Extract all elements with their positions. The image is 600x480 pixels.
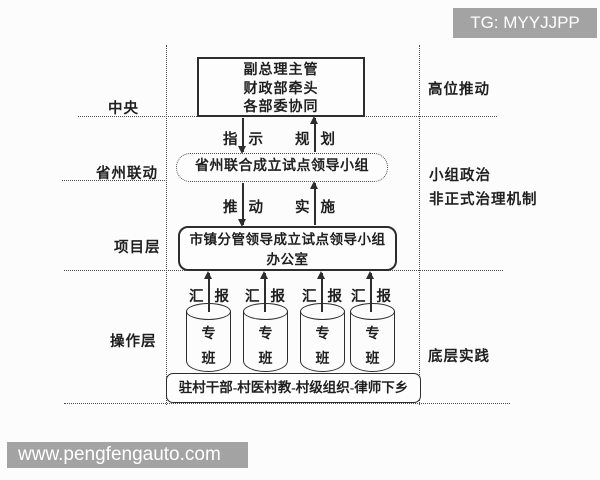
pilot-leading-group-box: 省州联合成立试点领导小组 [176, 153, 388, 182]
arrow-label-char: 报 [328, 285, 343, 306]
task-force-cylinder: 专 班 [243, 303, 288, 372]
cylinder-label: 专 班 [350, 322, 395, 372]
arrow-label-implement: 实 施 [295, 196, 335, 217]
arrow-label-report: 汇 报 [189, 285, 229, 306]
arrow-head [204, 271, 212, 279]
arrow-label-char: 实 [295, 196, 310, 217]
arrow-head [310, 181, 318, 189]
cylinder-label: 专 班 [243, 322, 288, 372]
diagram-canvas: 中央 省州联动 项目层 操作层 高位推动 小组政治 非正式治理机制 底层实践 副… [0, 0, 600, 480]
annotation-high-level-push: 高位推动 [428, 78, 490, 99]
arrow-label-char: 示 [249, 128, 264, 149]
central-government-box: 副总理主管 财政部牵头 各部委协同 [197, 57, 365, 117]
boundary-left-line [166, 45, 167, 405]
separator-bottom-line [64, 403, 510, 404]
central-box-line: 财政部牵头 [199, 81, 363, 100]
boundary-right-line [419, 45, 420, 405]
arrow-label-char: 汇 [245, 285, 260, 306]
cylinder-label-char: 班 [300, 347, 345, 372]
arrow-label-char: 划 [321, 128, 336, 149]
annotation-informal-governance: 非正式治理机制 [429, 188, 538, 209]
layer-label-project: 项目层 [114, 236, 161, 257]
arrow-label-push: 推 动 [223, 196, 263, 217]
cylinder-label: 专 班 [300, 322, 345, 372]
arrow-head [260, 271, 268, 279]
arrow-label-char: 指 [223, 128, 238, 149]
arrow-label-char: 规 [295, 128, 310, 149]
arrow-label-plan: 规 划 [295, 128, 335, 149]
arrow-label-instruct: 指 示 [223, 128, 263, 149]
layer-label-province: 省州联动 [96, 162, 158, 183]
cylinder-label-char: 专 [243, 322, 288, 347]
leading-group-office-box: 市镇分管领导成立试点领导小组 办公室 [178, 226, 397, 271]
arrow-label-char: 汇 [351, 285, 366, 306]
arrow-label-char: 汇 [189, 285, 204, 306]
annotation-group-politics: 小组政治 [429, 164, 491, 185]
central-box-line: 副总理主管 [199, 62, 363, 81]
layer-label-operation: 操作层 [110, 330, 157, 351]
arrow-head [317, 271, 325, 279]
task-force-cylinder: 专 班 [186, 303, 231, 372]
cylinder-label-char: 专 [300, 322, 345, 347]
arrow-label-char: 报 [215, 285, 230, 306]
cylinder-label-char: 专 [186, 322, 231, 347]
cylinder-label-char: 班 [243, 347, 288, 372]
arrow-label-char: 推 [223, 196, 238, 217]
arrow-label-report: 汇 报 [245, 285, 285, 306]
layer-label-central: 中央 [108, 97, 139, 118]
office-box-line: 办公室 [180, 250, 395, 270]
watermark-website: www.pengfengauto.com [7, 442, 248, 468]
arrow-label-report: 汇 报 [351, 285, 391, 306]
arrow-label-char: 施 [321, 196, 336, 217]
arrow-label-char: 汇 [302, 285, 317, 306]
arrow-head [366, 271, 374, 279]
task-force-cylinder: 专 班 [300, 303, 345, 372]
arrow-label-char: 动 [249, 196, 264, 217]
arrow-head [310, 116, 318, 124]
arrow-head [238, 219, 246, 227]
arrow-label-char: 报 [377, 285, 392, 306]
task-force-cylinder: 专 班 [350, 303, 395, 372]
cylinder-label-char: 专 [350, 322, 395, 347]
watermark-telegram: TG: MYYJJPP [453, 8, 597, 38]
cylinder-label: 专 班 [186, 322, 231, 372]
arrow-label-report: 汇 报 [302, 285, 342, 306]
cylinder-label-char: 班 [186, 347, 231, 372]
village-cadres-box: 驻村干部-村医村教-村级组织-律师下乡 [166, 373, 421, 403]
central-box-line: 各部委协同 [199, 99, 363, 118]
cylinder-label-char: 班 [350, 347, 395, 372]
annotation-grassroots-practice: 底层实践 [428, 345, 490, 366]
office-box-line: 市镇分管领导成立试点领导小组 [180, 230, 395, 250]
arrow-label-char: 报 [271, 285, 286, 306]
